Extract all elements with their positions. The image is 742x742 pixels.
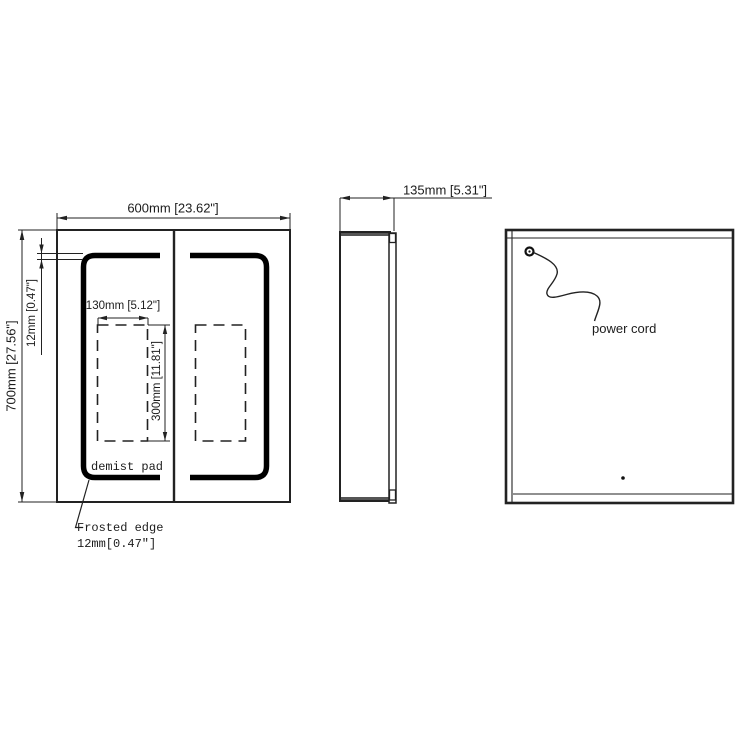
height-dim-arrow-bottom xyxy=(20,492,25,502)
pad-width-dimension-label: 130mm [5.12"] xyxy=(86,300,160,312)
frosted-edge-callout-line1: Frosted edge xyxy=(77,521,163,536)
led-band-right xyxy=(190,256,267,478)
width-dim-arrow-left xyxy=(57,216,67,221)
height-dimension-label: 700mm [27.56"] xyxy=(4,320,19,411)
pad-width-arrow-right xyxy=(139,316,148,320)
width-dim-arrow-right xyxy=(280,216,290,221)
frosted-dim-arrow-down xyxy=(39,245,43,254)
frosted-dim-arrow-up xyxy=(39,260,43,269)
power-cord-label: power cord xyxy=(592,321,656,336)
height-dim-arrow-top xyxy=(20,230,25,240)
side-door-outline xyxy=(389,233,396,503)
cord-entry-center-dot xyxy=(528,250,530,252)
demist-pad-right-outline xyxy=(196,325,246,441)
pad-height-arrow-bottom xyxy=(163,432,167,441)
depth-dim-arrow-left xyxy=(340,196,350,201)
side-body-outline xyxy=(340,232,390,501)
side-door-bottom-cap xyxy=(390,490,396,500)
mirror-cabinet-drawing xyxy=(0,0,742,742)
pad-height-dimension-label: 300mm [11.81"] xyxy=(151,341,163,421)
width-dimension-label: 600mm [23.62"] xyxy=(127,201,218,216)
depth-dimension-lines xyxy=(340,198,492,231)
back-view-outline xyxy=(506,230,733,503)
height-dimension-lines xyxy=(18,230,56,502)
demist-pad-label: demist pad xyxy=(91,460,163,474)
depth-dimension-label: 135mm [5.31"] xyxy=(403,183,487,198)
frosted-edge-dimension-label: 12mm [0.47"] xyxy=(26,279,38,347)
back-view-inner-panel-lines xyxy=(507,231,732,502)
frosted-edge-callout-line2: 12mm[0.47″] xyxy=(77,537,156,552)
pad-width-arrow-left xyxy=(98,316,107,320)
back-panel-dot xyxy=(621,476,625,480)
demist-pad-left-outline xyxy=(98,325,148,441)
technical-drawing-canvas: 600mm [23.62"] 700mm [27.56"] 12mm [0.47… xyxy=(0,0,742,742)
depth-dim-arrow-right xyxy=(383,196,393,201)
led-band-left xyxy=(84,256,161,478)
side-door-top-cap xyxy=(390,234,396,243)
pad-height-arrow-top xyxy=(163,325,167,334)
frosted-edge-dimension-lines xyxy=(37,238,83,355)
power-cord-line xyxy=(534,253,600,322)
